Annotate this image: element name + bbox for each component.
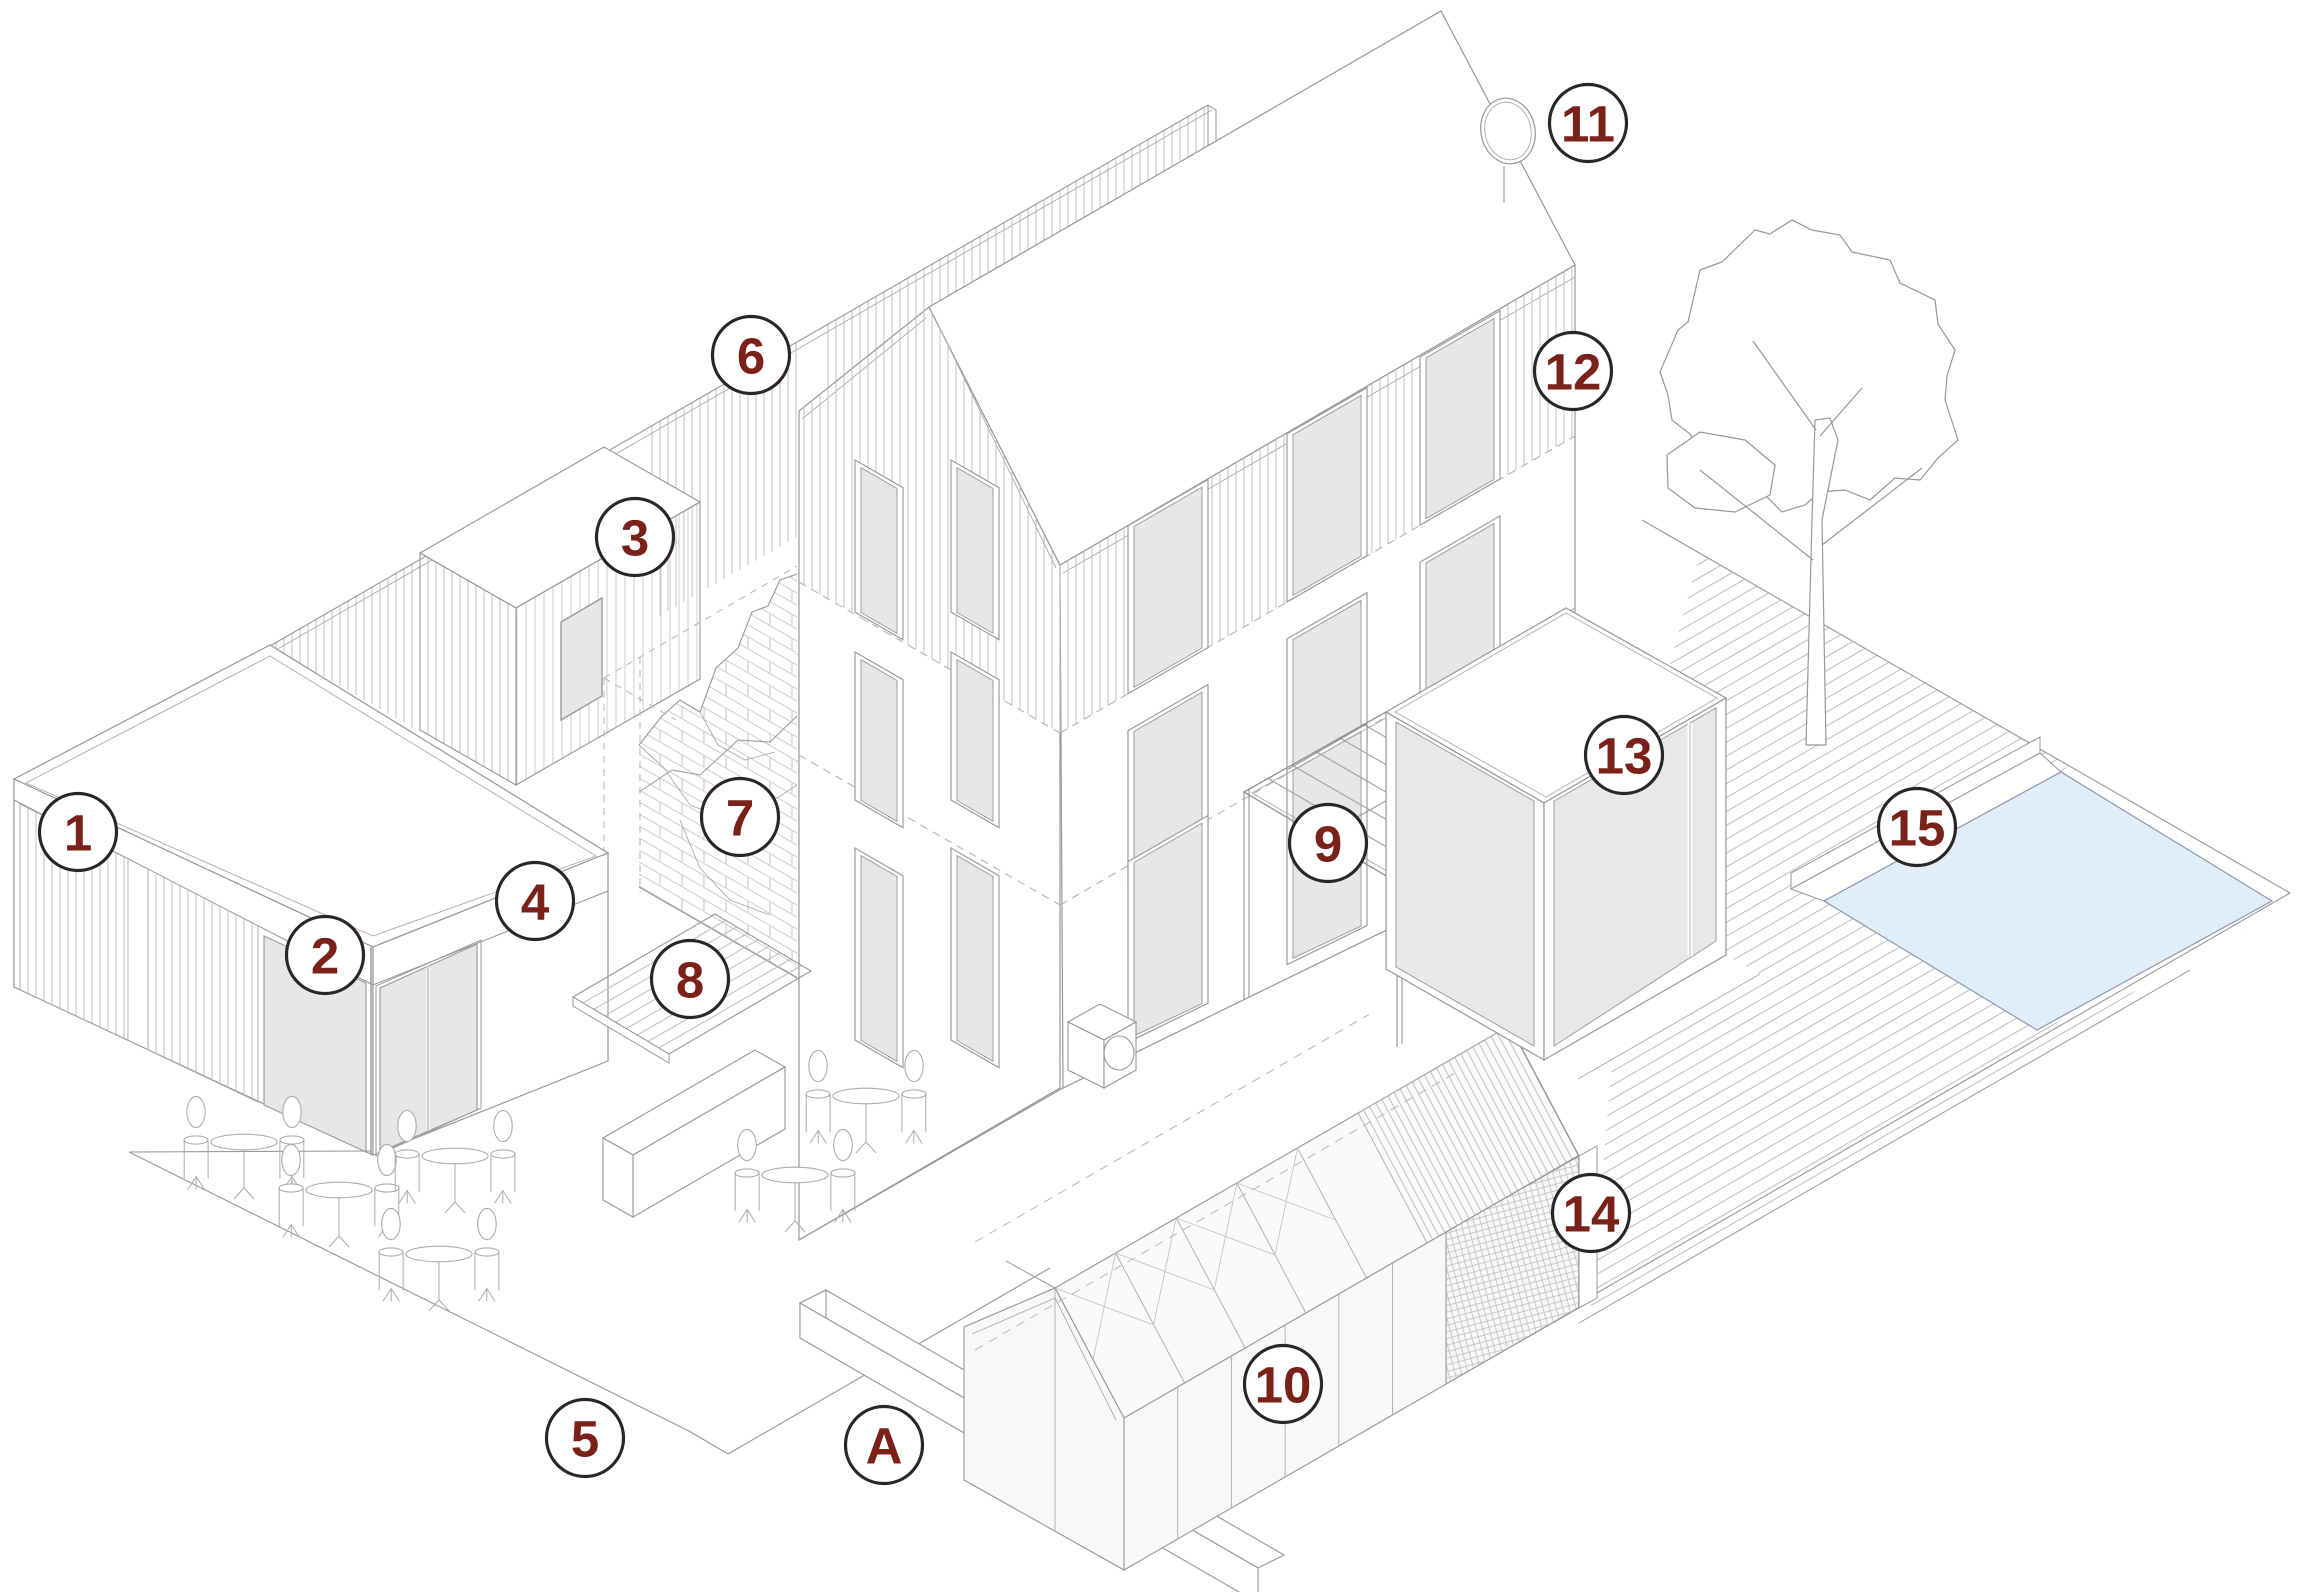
svg-text:5: 5 xyxy=(571,1411,599,1468)
svg-text:13: 13 xyxy=(1596,728,1653,785)
svg-text:4: 4 xyxy=(521,874,550,931)
svg-text:6: 6 xyxy=(737,328,765,385)
svg-text:A: A xyxy=(866,1418,903,1475)
svg-text:9: 9 xyxy=(1314,816,1342,873)
svg-text:8: 8 xyxy=(676,952,704,1009)
svg-text:12: 12 xyxy=(1545,344,1602,401)
svg-text:2: 2 xyxy=(311,928,339,985)
svg-text:3: 3 xyxy=(621,510,649,567)
svg-text:15: 15 xyxy=(1889,800,1946,857)
svg-text:11: 11 xyxy=(1561,96,1615,153)
svg-text:10: 10 xyxy=(1255,1357,1312,1414)
svg-text:7: 7 xyxy=(726,790,754,847)
svg-text:1: 1 xyxy=(64,805,92,862)
svg-text:14: 14 xyxy=(1563,1186,1620,1243)
